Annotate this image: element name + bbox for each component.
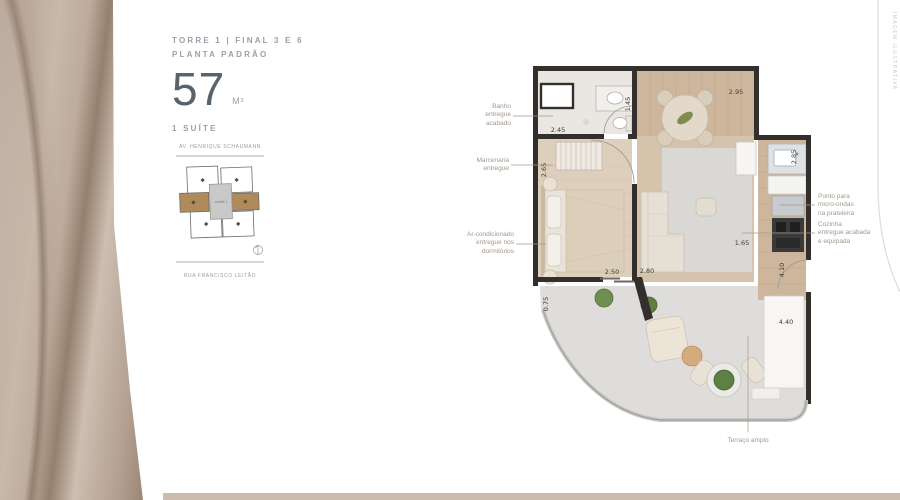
dim-kitchen-length: 4.10 — [778, 263, 786, 277]
decorative-artwork — [0, 0, 143, 500]
keyplan-diagram: TORRE 1 — [168, 150, 272, 268]
sliding-door — [600, 278, 634, 283]
annotation-terrace: Terraço amplo — [718, 437, 778, 445]
bath-mat — [583, 119, 589, 125]
keyplan-street-bottom: RUA FRANCISCO LEITÃO — [168, 273, 272, 279]
kitchen-counter — [768, 144, 806, 194]
annotation-ac: Ar-condicionado entregue nos dormitórios — [467, 231, 514, 256]
dim-bath-width: 2.45 — [551, 126, 565, 134]
dim-entry-side: 0.75 — [542, 297, 550, 311]
keyplan: AV. HENRIQUE SCHAUMANN TORRE 1 — [168, 144, 272, 274]
armchair — [696, 198, 716, 216]
dim-dining-left: 1.45 — [624, 97, 632, 111]
dim-terrace-width: 4.40 — [779, 318, 793, 326]
plan-type-title: PLANTA PADRÃO — [172, 50, 304, 59]
right-margin-label: IMAGEM ILUSTRATIVA — [891, 12, 897, 90]
oven-cooktop — [772, 218, 804, 252]
dim-dining-top: 2.95 — [729, 88, 743, 96]
microwave — [772, 196, 804, 216]
annotation-kitchen: Cozinha entregue acabada e equipada — [818, 221, 870, 246]
dim-kitchen-width: 1.65 — [735, 239, 749, 247]
dim-bedroom-width: 2.50 — [605, 268, 619, 276]
dim-kitchen-right: 2.85 — [790, 150, 798, 164]
area-figure: 57 M² — [172, 69, 304, 110]
area-value: 57 — [172, 69, 225, 110]
tower-title: TORRE 1 | FINAL 3 E 6 — [172, 36, 304, 45]
nightstand — [543, 177, 557, 191]
compass-icon — [254, 245, 263, 255]
annotation-joinery: Marcenaria entregue — [476, 157, 509, 174]
closet — [556, 142, 602, 170]
keyplan-core-label: TORRE 1 — [214, 200, 227, 204]
dining-table-set — [657, 90, 713, 146]
area-unit: M² — [232, 96, 245, 106]
floorplan-drawing: 2.45 2.65 1.45 2.95 2.85 1.65 2.50 2.80 … — [460, 50, 850, 465]
annotation-bath: Banho entregue acabado — [485, 103, 511, 128]
dim-living-width: 2.80 — [640, 267, 654, 275]
annotation-microwave: Ponto para micro-ondas na prateleira — [818, 193, 854, 218]
fridge — [736, 142, 756, 175]
bed — [541, 186, 624, 276]
plan-header: TORRE 1 | FINAL 3 E 6 PLANTA PADRÃO 57 M… — [172, 36, 304, 133]
bathroom-sink — [607, 92, 623, 104]
plant — [595, 289, 613, 307]
shower-box — [541, 84, 573, 108]
bottom-accent-bar — [163, 493, 900, 500]
suites-line: 1 SUÍTE — [172, 124, 304, 133]
